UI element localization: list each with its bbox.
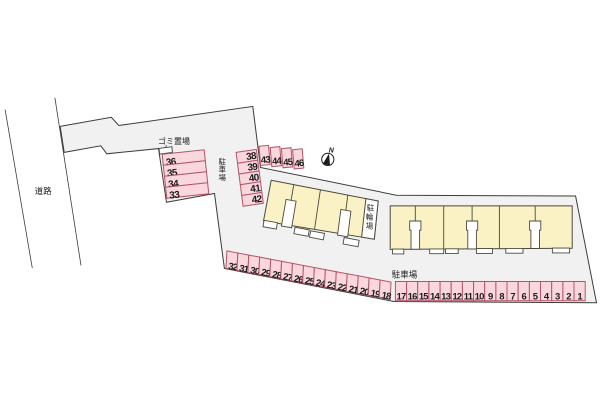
svg-text:15: 15 [419, 292, 429, 303]
svg-text:17: 17 [397, 292, 406, 303]
svg-text:駐車場: 駐車場 [392, 270, 418, 280]
svg-text:6: 6 [522, 292, 527, 303]
svg-text:7: 7 [510, 292, 515, 303]
svg-text:2: 2 [566, 292, 571, 303]
svg-text:10: 10 [475, 292, 484, 303]
svg-text:12: 12 [452, 292, 461, 303]
svg-text:8: 8 [499, 292, 504, 303]
svg-text:14: 14 [430, 292, 440, 303]
svg-text:ゴミ置場: ゴミ置場 [158, 136, 190, 146]
svg-text:16: 16 [408, 292, 417, 303]
svg-text:3: 3 [555, 292, 560, 303]
svg-text:43: 43 [260, 154, 270, 166]
svg-text:13: 13 [441, 292, 450, 303]
svg-text:駐車場: 駐車場 [219, 156, 227, 182]
svg-text:9: 9 [488, 292, 493, 303]
svg-text:46: 46 [294, 158, 304, 170]
svg-text:道路: 道路 [35, 186, 53, 196]
